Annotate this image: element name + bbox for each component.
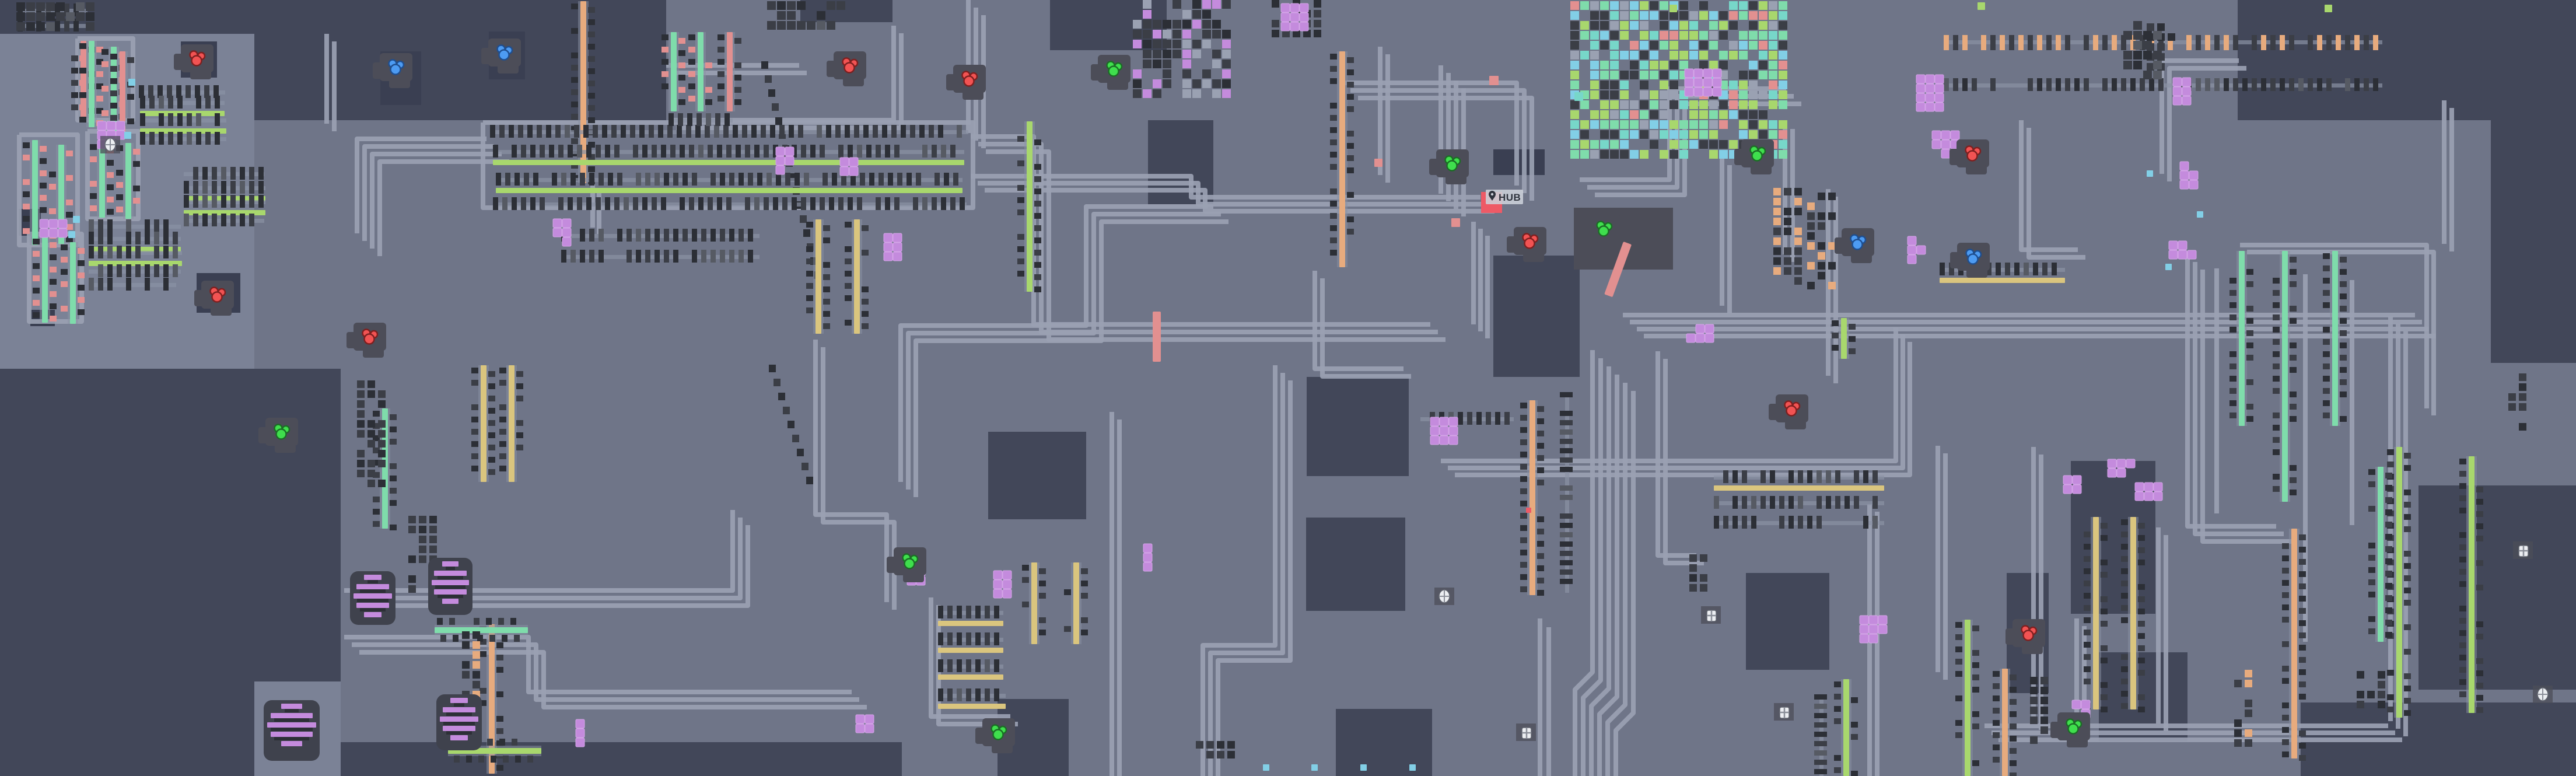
machine-block: [1773, 247, 1781, 255]
cyan-dot: [1311, 764, 1318, 771]
machine-block: [357, 450, 365, 457]
map-zone-darker: [800, 0, 892, 22]
machine-block: [357, 460, 365, 467]
machine-block: [1784, 267, 1791, 275]
machine-block: [2357, 701, 2364, 708]
machine-block: [768, 89, 775, 97]
machine-block: [1773, 237, 1781, 245]
hub-label: HUB: [1499, 192, 1521, 203]
machine-block: [2378, 701, 2385, 708]
shape-resource-patch: [2135, 483, 2162, 501]
lime-dot: [1978, 2, 1985, 10]
machine-block: [367, 440, 375, 448]
machine-block: [1794, 188, 1802, 195]
machine-block: [761, 61, 768, 69]
machine-block: [2157, 23, 2165, 31]
machine-row: [184, 214, 264, 226]
machine-block: [473, 641, 480, 649]
cyan-dot: [2147, 170, 2153, 177]
map-zone-darker: [254, 0, 666, 120]
machine-block: [1828, 282, 1836, 289]
machine-block: [1807, 262, 1815, 270]
machine-block: [357, 410, 365, 418]
machine-block: [1818, 193, 1825, 200]
machine-block: [1784, 188, 1791, 195]
map-zone-darker: [1307, 377, 1409, 476]
machine-block: [2245, 739, 2252, 747]
machine-block: [1784, 218, 1791, 225]
machine-block: [2041, 707, 2048, 714]
machine-block: [2378, 671, 2385, 679]
machine-block: [367, 460, 375, 467]
machine-row: [1814, 694, 1827, 776]
machine-block: [773, 379, 780, 386]
machine-block: [357, 380, 365, 388]
machine-block: [367, 390, 375, 398]
machine-block: [378, 440, 386, 448]
machine-block: [2234, 719, 2242, 727]
machine-block: [378, 400, 386, 408]
machine-block: [1689, 554, 1697, 562]
machine-block: [2367, 691, 2375, 698]
map-zone-darker: [2418, 485, 2576, 690]
machine-block: [1807, 222, 1815, 230]
machine-block: [357, 420, 365, 428]
machine-block: [1784, 247, 1791, 255]
machine-block: [1784, 257, 1791, 265]
machine-block: [2519, 393, 2526, 401]
machine-block: [2519, 373, 2526, 381]
shape-resource-patch: [2173, 78, 2191, 105]
shape-resource-patch: [1143, 544, 1152, 571]
machine-block: [1794, 247, 1802, 255]
machine-block: [801, 463, 808, 470]
machine-block: [408, 575, 416, 583]
factory-map-viewport[interactable]: HUB: [0, 0, 2576, 776]
machine-block: [1700, 584, 1707, 592]
machine-block: [1807, 242, 1815, 250]
machine-block: [2519, 423, 2526, 431]
building-glyph-win: [1701, 606, 1721, 624]
machine-block: [1206, 751, 1214, 758]
cyan-dot: [68, 231, 75, 238]
machine-block: [408, 526, 416, 533]
machine-block: [2030, 716, 2038, 724]
machine-block: [1206, 741, 1214, 749]
machine-block: [429, 536, 437, 543]
machine-block: [1689, 574, 1697, 582]
machine-block: [462, 631, 470, 639]
machine-block: [1807, 212, 1815, 220]
teal-dot: [1574, 92, 1583, 101]
machine-block: [1700, 574, 1707, 582]
machine-block: [2378, 681, 2385, 688]
machine-block: [473, 671, 480, 679]
salmon-dot: [1489, 76, 1499, 85]
machine-block: [1227, 741, 1235, 749]
machine-block: [2168, 33, 2175, 41]
machine-block: [1314, 10, 1321, 18]
factory-map-canvas[interactable]: HUB: [0, 0, 2576, 776]
machine-block: [1818, 212, 1825, 220]
machine-block: [1818, 242, 1825, 250]
machine-block: [1828, 212, 1836, 220]
building-glyph-win: [1516, 723, 1536, 741]
machine-block: [2041, 716, 2048, 724]
machine-block: [1828, 193, 1836, 200]
machine-block: [378, 480, 386, 487]
machine-row: [89, 246, 182, 266]
machine-block: [1227, 751, 1235, 758]
map-zone-darker: [2491, 0, 2576, 363]
shape-resource-patch: [884, 233, 902, 261]
machine-block: [419, 536, 426, 543]
machine-block: [797, 449, 804, 456]
machine-block: [1818, 222, 1825, 230]
machine-block: [2357, 671, 2364, 679]
machine-block: [473, 681, 480, 688]
machine-block: [1807, 202, 1815, 210]
machine-block: [800, 215, 807, 223]
shape-resource-patch: [1430, 417, 1458, 445]
cyan-dot: [128, 79, 135, 86]
cyan-dot: [2165, 264, 2172, 270]
lime-dot: [1669, 5, 1677, 12]
striped-cluster: [436, 694, 482, 750]
salmon-dot: [1451, 218, 1460, 227]
cyan-dot: [1263, 764, 1269, 771]
machine-block: [2234, 739, 2242, 747]
machine-block: [1314, 20, 1321, 27]
machine-block: [408, 555, 416, 563]
machine-row: [184, 195, 265, 215]
machine-block: [367, 380, 375, 388]
cyan-dot: [73, 216, 80, 223]
machine-block: [367, 480, 375, 487]
map-zone-darker: [1493, 256, 1580, 377]
machine-block: [1794, 257, 1802, 265]
machine-block: [2245, 729, 2252, 737]
machine-block: [2245, 700, 2252, 707]
machine-block: [1689, 584, 1697, 592]
shape-resource-patch: [40, 219, 67, 237]
machine-block: [1272, 30, 1279, 37]
machine-block: [378, 420, 386, 428]
machine-block: [2234, 729, 2242, 737]
machine-block: [1794, 277, 1802, 285]
machine-block: [765, 75, 772, 83]
machine-block: [1784, 228, 1791, 235]
lime-dot: [2325, 5, 2332, 12]
striped-cluster: [350, 571, 395, 625]
cyan-dot: [1360, 764, 1367, 771]
machine-block: [1217, 751, 1224, 758]
machine-block: [772, 103, 779, 111]
building-glyph-win: [1774, 703, 1794, 721]
machine-block: [378, 450, 386, 457]
machine-block: [1773, 198, 1781, 205]
machine-block: [357, 400, 365, 408]
machine-block: [778, 393, 785, 400]
machine-block: [2519, 383, 2526, 391]
machine-block: [2030, 707, 2038, 714]
map-zone-darker: [341, 742, 902, 776]
machine-block: [775, 117, 782, 125]
machine-block: [1314, 0, 1321, 8]
machine-block: [429, 516, 437, 523]
striped-cluster: [264, 700, 320, 761]
machine-block: [2157, 43, 2165, 51]
machine-block: [792, 435, 799, 442]
machine-block: [1818, 272, 1825, 279]
machine-block: [1818, 262, 1825, 270]
machine-block: [1794, 198, 1802, 205]
machine-block: [429, 546, 437, 553]
shape-resource-patch: [993, 571, 1012, 598]
machine-block: [1689, 564, 1697, 572]
salmon-dot: [1374, 159, 1382, 167]
cyan-dot: [2197, 211, 2203, 218]
machine-block: [1794, 228, 1802, 235]
machine-block: [2147, 23, 2154, 31]
machine-block: [2245, 670, 2252, 677]
machine-block: [2519, 403, 2526, 411]
machine-block: [462, 641, 470, 649]
machine-block: [2357, 691, 2364, 698]
machine-block: [1773, 208, 1781, 215]
machine-block: [419, 516, 426, 523]
machine-block: [787, 421, 794, 428]
machine-block: [2030, 697, 2038, 704]
map-zone-darker: [1336, 709, 1432, 776]
machine-block: [419, 526, 426, 533]
machine-block: [2030, 677, 2038, 684]
machine-block: [1818, 252, 1825, 260]
striped-cluster: [428, 558, 473, 615]
machine-block: [1272, 0, 1279, 8]
machine-block: [408, 585, 416, 593]
machine-block: [462, 671, 470, 679]
machine-block: [1807, 232, 1815, 240]
machine-block: [1773, 228, 1781, 235]
map-zone-darker: [2238, 0, 2491, 120]
machine-block: [367, 470, 375, 477]
machine-block: [357, 430, 365, 438]
machine-block: [783, 407, 790, 414]
machine-block: [2041, 687, 2048, 694]
machine-block: [419, 555, 426, 563]
machine-block: [1217, 741, 1224, 749]
machine-block: [378, 460, 386, 467]
machine-block: [1773, 188, 1781, 195]
machine-block: [1828, 262, 1836, 270]
map-zone-darker: [988, 432, 1086, 519]
machine-block: [357, 470, 365, 477]
shape-resource-patch: [1281, 4, 1308, 31]
machine-block: [429, 526, 437, 533]
machine-block: [2245, 680, 2252, 687]
machine-block: [803, 229, 810, 237]
shape-resource-patch: [1916, 75, 1944, 111]
machine-block: [2245, 709, 2252, 717]
building-glyph-oval: [100, 136, 120, 153]
machine-block: [1794, 237, 1802, 245]
shape-resource-patch: [576, 719, 584, 747]
machine-row: [184, 167, 264, 180]
machine-block: [1794, 267, 1802, 275]
machine-block: [357, 390, 365, 398]
machine-block: [2508, 393, 2516, 401]
machine-block: [367, 430, 375, 438]
machine-block: [2030, 736, 2038, 744]
machine-block: [1272, 20, 1279, 27]
machine-block: [2041, 677, 2048, 684]
machine-block: [1794, 208, 1802, 215]
machine-block: [462, 661, 470, 669]
machine-block: [473, 661, 480, 669]
map-zone-darker: [1306, 518, 1405, 611]
hubRed-dot: [1526, 508, 1531, 513]
machine-block: [2234, 680, 2242, 687]
building-glyph-oval: [1434, 588, 1454, 605]
machine-row: [496, 173, 963, 193]
machine-block: [1784, 208, 1791, 215]
machine-block: [769, 365, 776, 372]
cyan-dot: [1409, 764, 1416, 771]
machine-block: [806, 477, 813, 484]
machine-block: [1773, 257, 1781, 265]
machine-block: [1700, 554, 1707, 562]
machine-block: [367, 420, 375, 428]
machine-block: [1807, 282, 1815, 289]
machine-block: [378, 390, 386, 398]
machine-block: [2030, 687, 2038, 694]
machine-block: [2041, 697, 2048, 704]
shape-resource-patch: [1685, 69, 1721, 96]
tinted-bar: [1153, 312, 1161, 362]
machine-block: [473, 651, 480, 659]
machine-block: [2378, 691, 2385, 698]
machine-block: [473, 631, 480, 639]
machine-block: [2508, 403, 2516, 411]
map-zone-darker: [1746, 573, 1829, 670]
machine-block: [1196, 741, 1203, 749]
machine-block: [2041, 726, 2048, 734]
machine-block: [1314, 30, 1321, 37]
cyan-dot: [124, 132, 131, 139]
machine-block: [1773, 218, 1781, 225]
building-glyph-win: [2513, 541, 2533, 559]
building-glyph-oval: [2533, 686, 2553, 703]
hub-map-tag[interactable]: HUB: [1486, 190, 1523, 204]
machine-block: [408, 516, 416, 523]
machine-block: [378, 430, 386, 438]
machine-block: [419, 546, 426, 553]
machine-block: [1773, 267, 1781, 275]
